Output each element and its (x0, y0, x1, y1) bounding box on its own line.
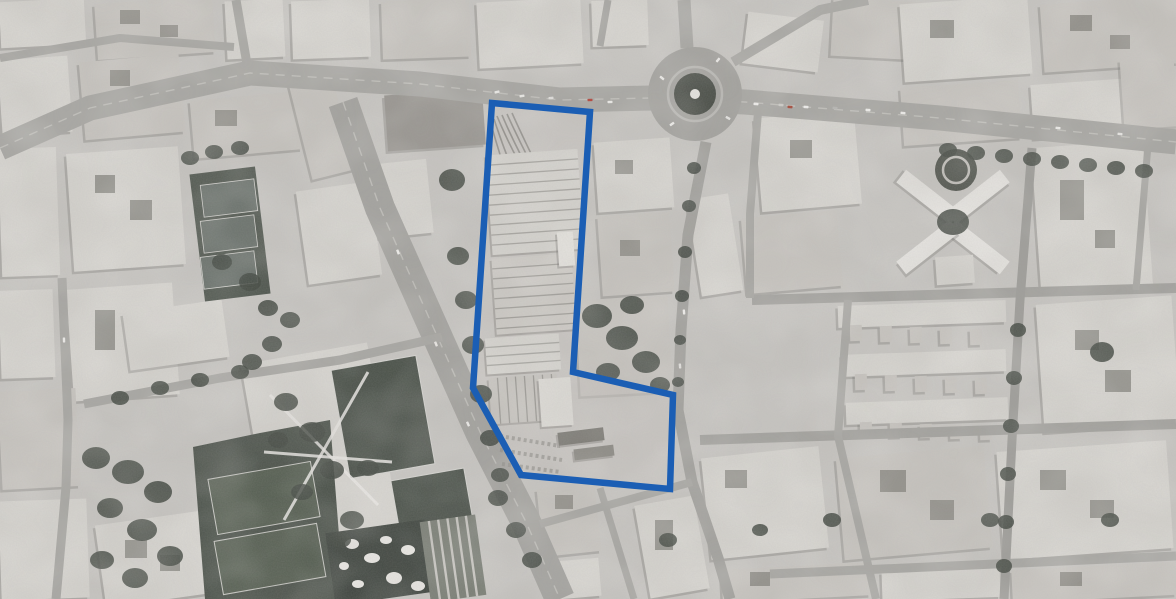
aerial-screenshot (0, 0, 1176, 599)
aerial-svg (0, 0, 1176, 599)
film-grain-overlay (0, 0, 1176, 599)
